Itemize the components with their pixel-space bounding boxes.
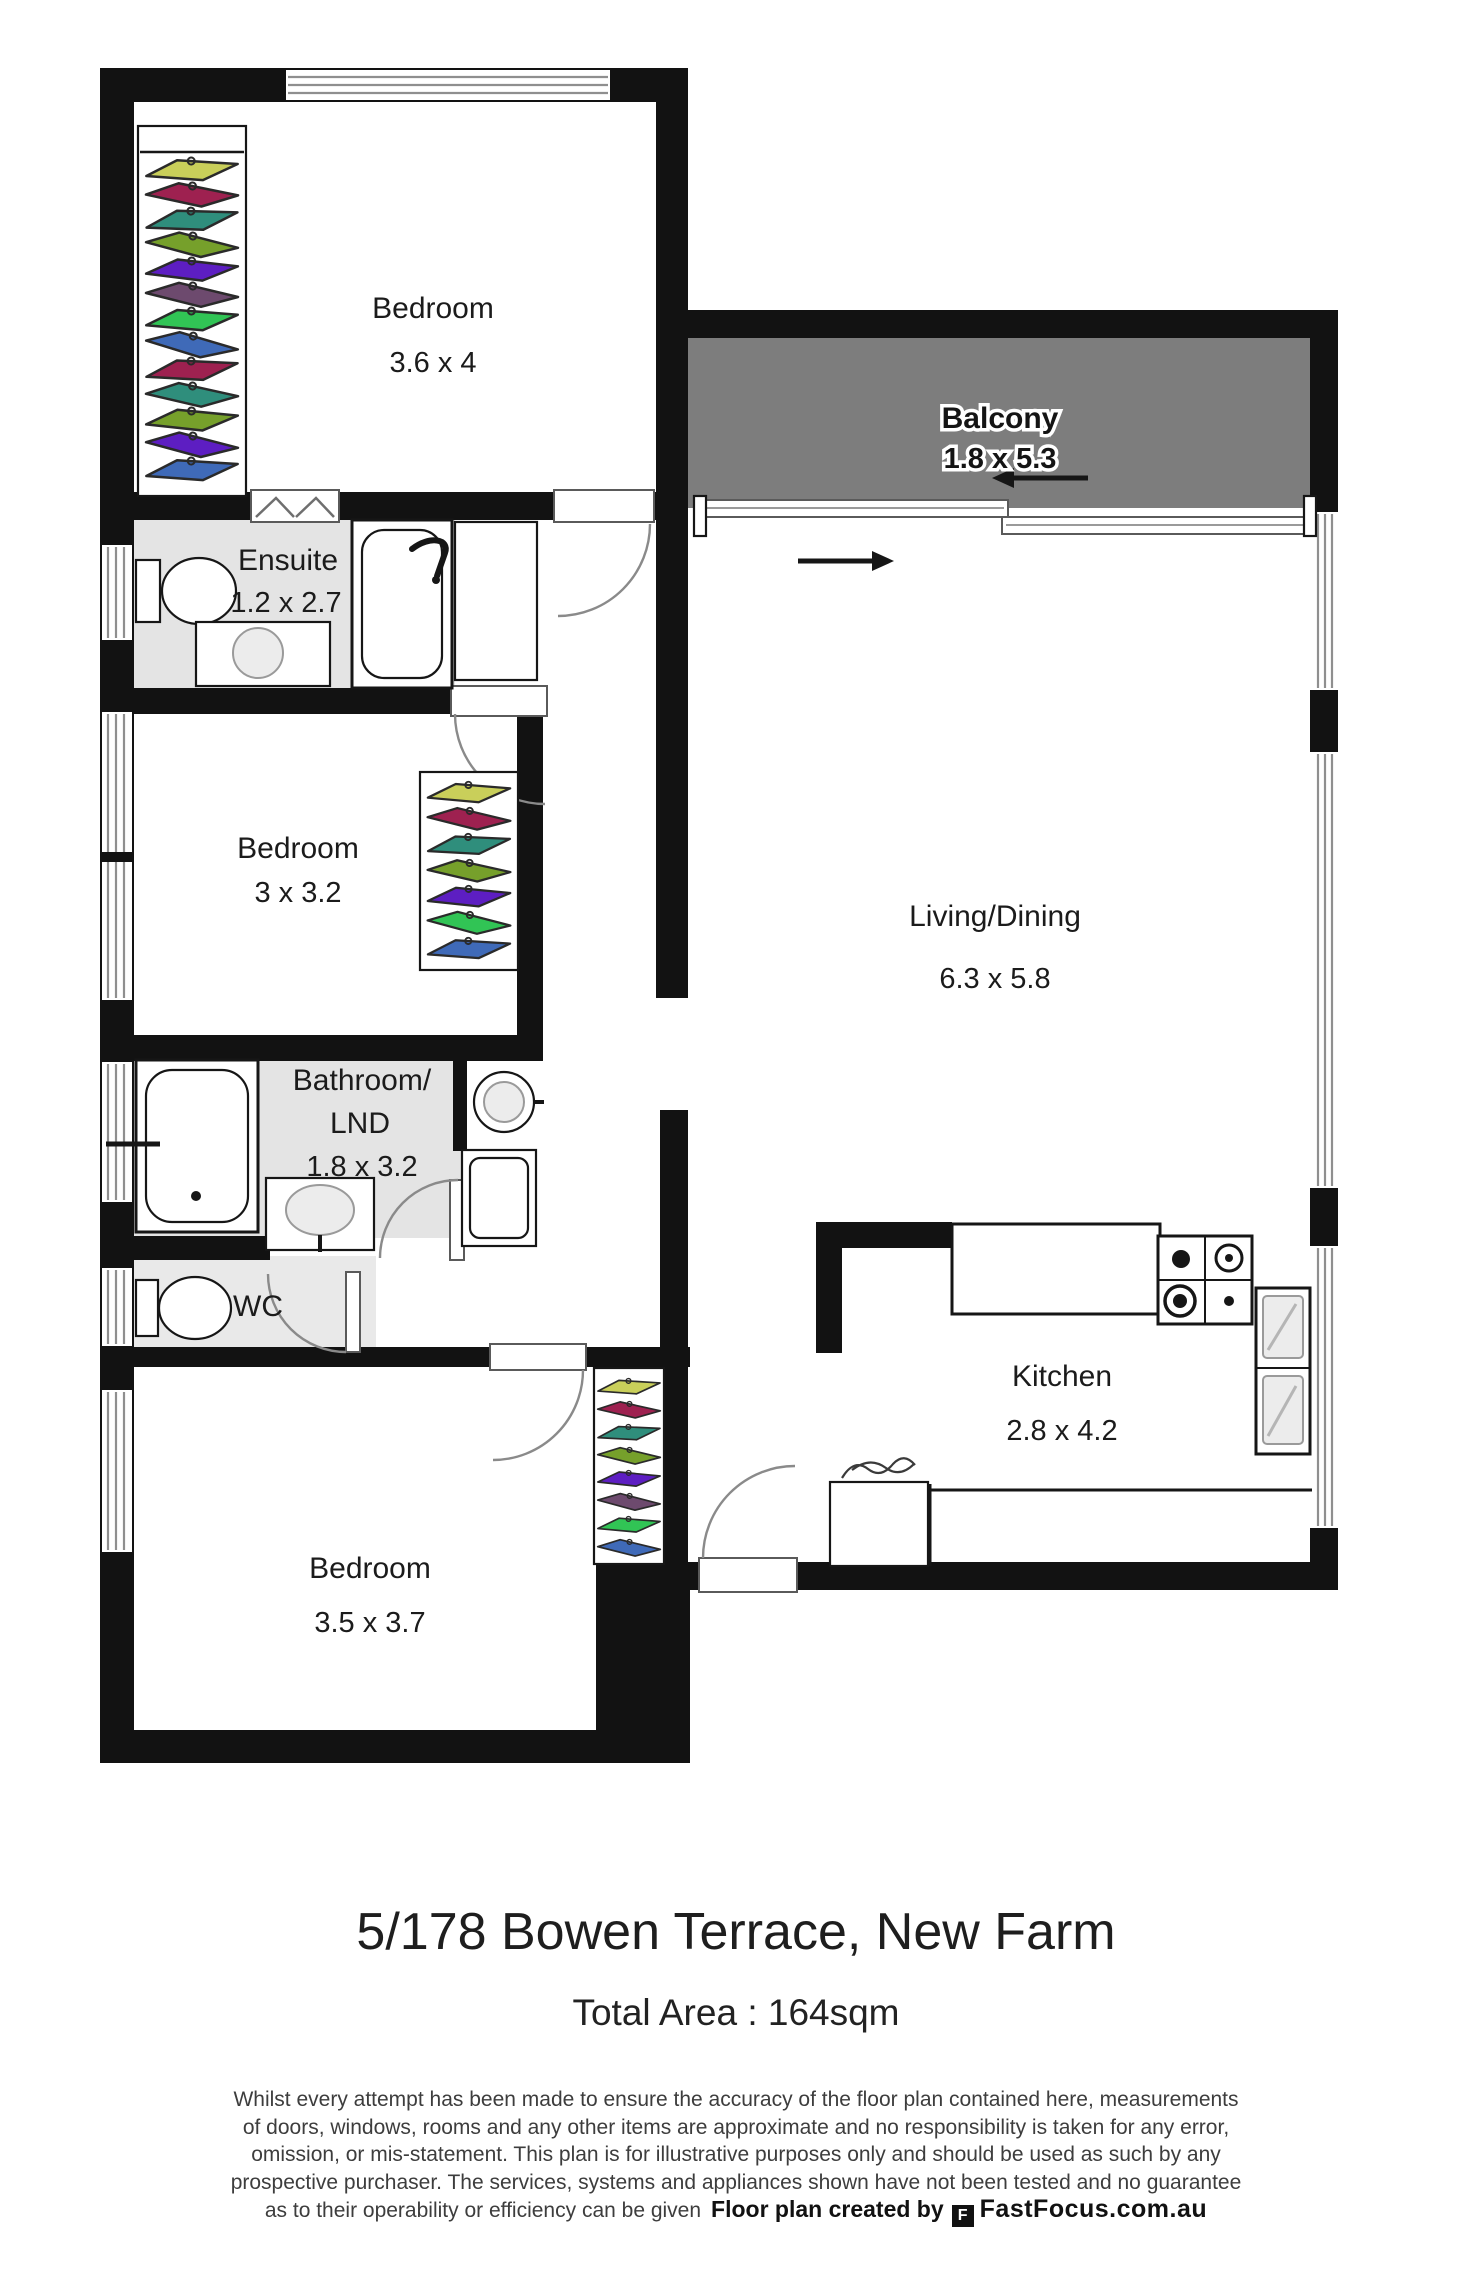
disclaimer-line: prospective purchaser. The services, sys… xyxy=(0,2169,1472,2197)
disclaimer-line-last: as to their operability or efficiency ca… xyxy=(265,2199,701,2222)
disclaimer-line: Whilst every attempt has been made to en… xyxy=(0,2086,1472,2114)
wc-toilet-icon xyxy=(136,1277,231,1339)
wardrobe-bedroom3 xyxy=(594,1368,664,1564)
credit-brand: FastFocus.com.au xyxy=(980,2195,1208,2223)
kitchen-sink-icon xyxy=(830,1458,928,1566)
window-kitchen-right xyxy=(1312,1246,1338,1528)
balcony-dims: 1.8 x 5.3 xyxy=(944,443,1057,475)
fastfocus-logo-glyph: F xyxy=(958,2207,968,2224)
bathroom-label-2: LND xyxy=(330,1107,390,1140)
bathroom-dims: 1.8 x 3.2 xyxy=(306,1151,417,1183)
bedroom3-door xyxy=(490,1344,586,1460)
kitchen-label: Kitchen xyxy=(1012,1360,1112,1393)
washing-machine-icon xyxy=(462,1150,536,1246)
ensuite-label: Ensuite xyxy=(238,544,338,577)
wardrobe-bedroom2 xyxy=(420,772,518,970)
fastfocus-logo-icon: F xyxy=(952,2205,974,2227)
bathroom-vanity-icon xyxy=(266,1178,374,1252)
address-title: 5/178 Bowen Terrace, New Farm xyxy=(0,1902,1472,1962)
disclaimer-line: of doors, windows, rooms and any other i… xyxy=(0,2114,1472,2142)
window-living-right-2 xyxy=(1312,752,1338,1188)
ensuite-bifold-door xyxy=(251,490,339,522)
refrigerator-icon xyxy=(1256,1288,1310,1454)
window-bathroom-left xyxy=(102,1062,132,1202)
disclaimer-text: Whilst every attempt has been made to en… xyxy=(0,2086,1472,2227)
living-dining-dims: 6.3 x 5.8 xyxy=(939,963,1050,995)
bedroom2-dims: 3 x 3.2 xyxy=(254,877,341,909)
window-bedroom1-top xyxy=(286,70,610,100)
balcony-label: Balcony xyxy=(942,402,1059,435)
disclaimer-line: omission, or mis-statement. This plan is… xyxy=(0,2141,1472,2169)
bathroom-label-1: Bathroom/ xyxy=(293,1064,432,1097)
bedroom3-dims: 3.5 x 3.7 xyxy=(314,1607,425,1639)
wardrobe-bedroom1 xyxy=(138,126,246,496)
laundry-basin-icon xyxy=(474,1072,544,1132)
walls xyxy=(100,68,1338,1763)
bedroom1-door xyxy=(554,490,654,616)
credit-prefix: Floor plan created by xyxy=(711,2196,944,2222)
bedroom3-label: Bedroom xyxy=(309,1552,431,1585)
vanity-sink-icon xyxy=(196,622,330,686)
linen-closet xyxy=(455,522,537,680)
ensuite-dims: 1.2 x 2.7 xyxy=(230,587,341,619)
bedroom2-label: Bedroom xyxy=(237,832,359,865)
floor-plan-page: Bedroom 3.6 x 4 Balcony 1.8 x 5.3 Ensuit… xyxy=(0,0,1472,2279)
toilet-icon xyxy=(136,558,236,624)
window-bedroom2-left xyxy=(102,712,132,1000)
bathtub-shower-icon xyxy=(352,520,452,688)
window-ensuite-left xyxy=(102,545,132,640)
disclaimer-credit-line: as to their operability or efficiency ca… xyxy=(0,2196,1472,2227)
total-area-text: Total Area : 164sqm xyxy=(0,1992,1472,2034)
bedroom1-dims: 3.6 x 4 xyxy=(389,347,476,379)
window-living-right-1 xyxy=(1312,512,1338,690)
living-dining-label: Living/Dining xyxy=(909,900,1081,933)
window-wc-left xyxy=(102,1268,132,1346)
wc-label: WC xyxy=(233,1290,283,1323)
cooktop-icon xyxy=(1158,1236,1252,1324)
window-bedroom3-left xyxy=(102,1390,132,1552)
entry-door xyxy=(699,1466,797,1592)
arrow-right-icon xyxy=(798,551,894,571)
bedroom1-label: Bedroom xyxy=(372,292,494,325)
kitchen-dims: 2.8 x 4.2 xyxy=(1006,1415,1117,1447)
